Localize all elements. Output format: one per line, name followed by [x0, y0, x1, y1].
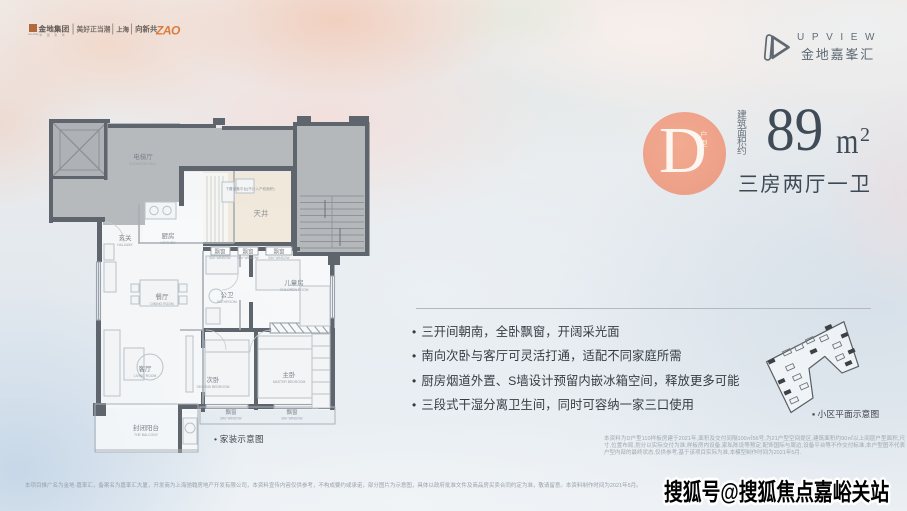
svg-text:BATHROOM: BATHROOM — [217, 300, 237, 304]
svg-text:天井: 天井 — [254, 208, 269, 218]
svg-text:BAY WINDOW: BAY WINDOW — [210, 256, 231, 260]
svg-text:BAY WINDOW: BAY WINDOW — [282, 417, 303, 421]
svg-text:儿童房: 儿童房 — [284, 278, 304, 287]
svg-text:飘窗: 飘窗 — [286, 408, 298, 416]
svg-text:公卫: 公卫 — [221, 291, 235, 299]
svg-text:BAY WINDOW: BAY WINDOW — [221, 417, 242, 421]
svg-text:主卧: 主卧 — [283, 370, 297, 379]
svg-text:ELEVATOR HALL: ELEVATOR HALL — [130, 162, 157, 166]
svg-text:• 家装示意图: • 家装示意图 — [214, 433, 264, 444]
svg-text:LIVING ROOM: LIVING ROOM — [134, 374, 157, 378]
svg-text:下置设备平台(不计入产权面积): 下置设备平台(不计入产权面积) — [225, 186, 274, 191]
svg-text:BAY WINDOW: BAY WINDOW — [238, 256, 259, 260]
svg-text:客厅: 客厅 — [139, 364, 153, 373]
svg-text:MASTER BEDROOM: MASTER BEDROOM — [273, 380, 306, 384]
svg-text:KITCHEN: KITCHEN — [161, 241, 176, 245]
svg-text:次卧: 次卧 — [207, 375, 221, 384]
svg-text:餐厅: 餐厅 — [156, 292, 170, 301]
svg-text:飘窗: 飘窗 — [273, 248, 285, 256]
svg-text:玄关: 玄关 — [119, 233, 133, 242]
svg-text:BAY WINDOW: BAY WINDOW — [269, 256, 290, 260]
svg-text:HALLWAY: HALLWAY — [117, 243, 133, 247]
svg-text:CHILDREN ROOM: CHILDREN ROOM — [280, 288, 309, 292]
svg-text:THE BALCONY: THE BALCONY — [134, 433, 159, 437]
svg-text:封闭阳台: 封闭阳台 — [133, 423, 159, 432]
svg-text:SECOND BEDROOM: SECOND BEDROOM — [197, 385, 230, 389]
svg-text:飘窗: 飘窗 — [242, 248, 254, 256]
svg-text:飘窗: 飘窗 — [214, 248, 226, 256]
svg-text:DINING ROOM: DINING ROOM — [150, 302, 174, 306]
svg-text:电梯厅: 电梯厅 — [133, 152, 153, 161]
svg-text:飘窗: 飘窗 — [225, 408, 237, 416]
svg-text:厨房: 厨房 — [162, 231, 175, 240]
